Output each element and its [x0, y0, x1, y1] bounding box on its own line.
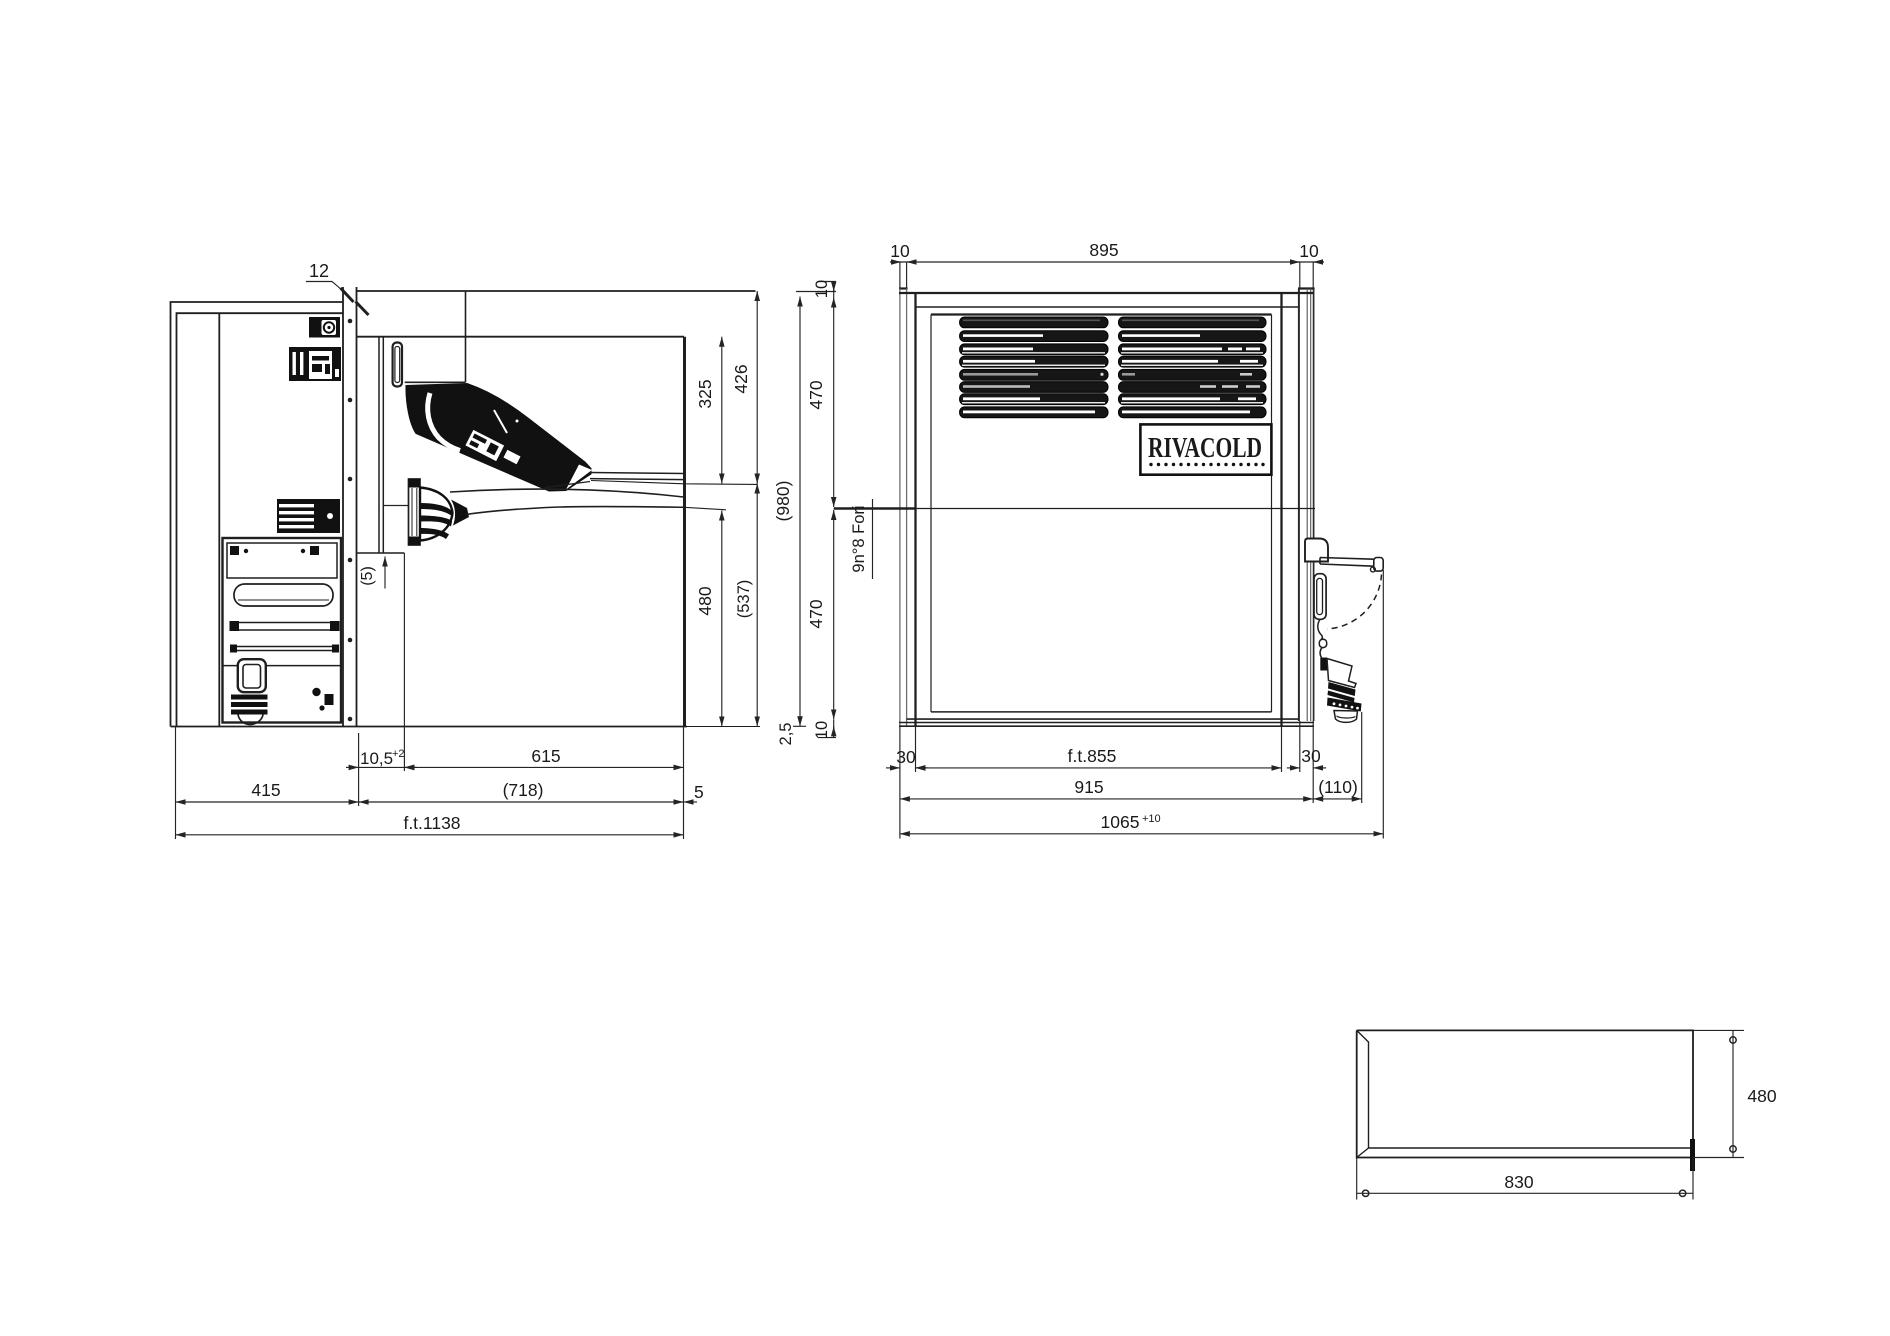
svg-text:10: 10 [1299, 241, 1319, 261]
svg-text:480: 480 [1747, 1086, 1776, 1106]
svg-text:(980): (980) [773, 481, 793, 522]
svg-text:10: 10 [813, 280, 831, 298]
svg-text:9n°8 Fori: 9n°8 Fori [850, 505, 868, 572]
svg-text:426: 426 [731, 364, 751, 393]
svg-text:f.t.855: f.t.855 [1068, 746, 1117, 766]
svg-text:12: 12 [309, 261, 329, 281]
svg-text:30: 30 [896, 747, 916, 767]
svg-text:415: 415 [251, 780, 280, 800]
svg-text:30: 30 [1301, 746, 1321, 766]
svg-text:f.t.1138: f.t.1138 [403, 813, 460, 833]
svg-text:10: 10 [813, 721, 831, 739]
svg-text:895: 895 [1089, 240, 1118, 260]
svg-text:(5): (5) [359, 566, 376, 586]
svg-text:(718): (718) [503, 780, 544, 800]
svg-text:10: 10 [890, 241, 910, 261]
svg-text:10,5: 10,5 [360, 749, 393, 768]
svg-text:5: 5 [694, 782, 704, 802]
svg-text:470: 470 [806, 599, 826, 628]
svg-text:(537): (537) [735, 580, 753, 619]
svg-text:915: 915 [1074, 777, 1103, 797]
svg-text:615: 615 [531, 746, 560, 766]
svg-text:+10: +10 [1142, 813, 1161, 825]
svg-text:480: 480 [695, 586, 715, 615]
svg-text:1065: 1065 [1101, 812, 1140, 832]
svg-text:325: 325 [695, 379, 715, 408]
svg-text:830: 830 [1504, 1172, 1533, 1192]
svg-text:470: 470 [806, 380, 826, 409]
svg-text:(110): (110) [1318, 777, 1358, 797]
svg-text:2,5: 2,5 [777, 723, 795, 746]
svg-text:+2: +2 [392, 748, 405, 760]
svg-text:RIVACOLD: RIVACOLD [1148, 433, 1262, 464]
